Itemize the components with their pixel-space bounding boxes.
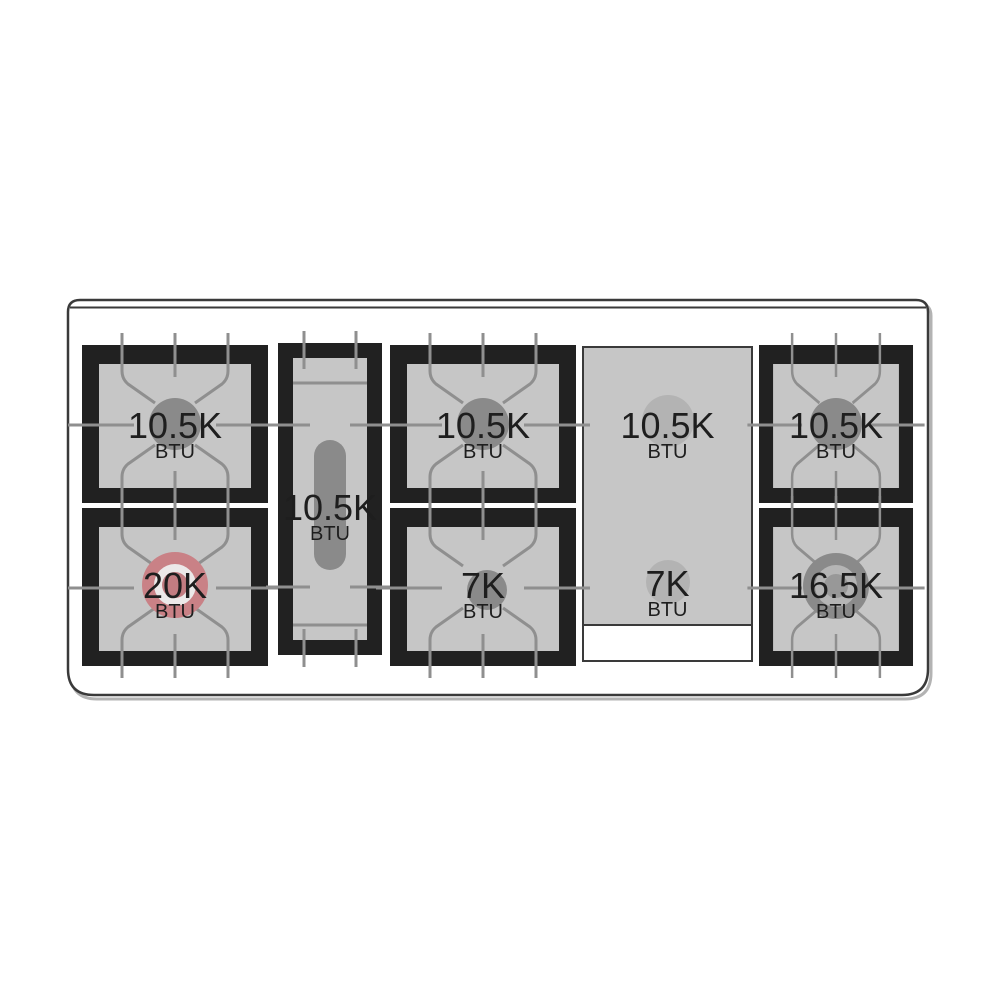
- burner-head-bottom-middle: [467, 570, 507, 610]
- burner-head-top-right: [810, 398, 862, 450]
- cooktop-diagram: 10.5K BTU 20K BTU 10.5K BTU 10.5K BTU 7K…: [0, 0, 1000, 1000]
- griddle-plate: [583, 347, 752, 661]
- burner-head-top-middle: [457, 398, 509, 450]
- burner-head-bottom-right-dual-ring: [803, 553, 869, 619]
- griddle-bottom-burner-circle: [646, 560, 690, 604]
- cooktop-diagram-svg: [0, 0, 1000, 1000]
- griddle-top-burner-circle: [642, 395, 694, 447]
- burner-head-top-left: [149, 398, 201, 450]
- griddle-front-tray: [583, 625, 752, 661]
- burner-grate-center-oval: [266, 331, 394, 667]
- burner-head-bottom-left-highlighted: [142, 552, 208, 618]
